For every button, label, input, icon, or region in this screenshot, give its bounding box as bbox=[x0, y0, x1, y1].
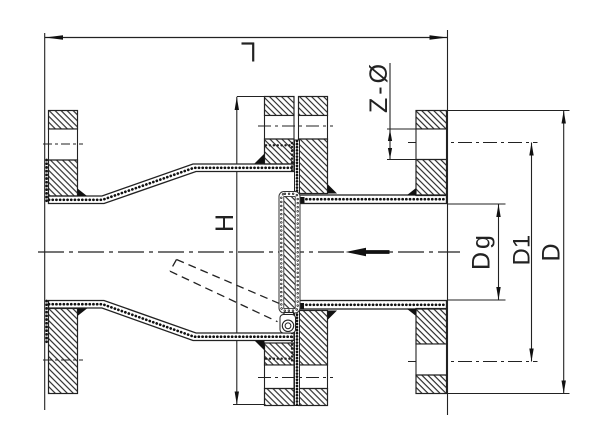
svg-text:H: H bbox=[211, 214, 239, 232]
svg-text:Z-Ø: Z-Ø bbox=[365, 61, 393, 113]
svg-text:D: D bbox=[538, 243, 566, 261]
svg-text:D1: D1 bbox=[509, 235, 536, 266]
svg-text:Dg: Dg bbox=[468, 232, 496, 270]
